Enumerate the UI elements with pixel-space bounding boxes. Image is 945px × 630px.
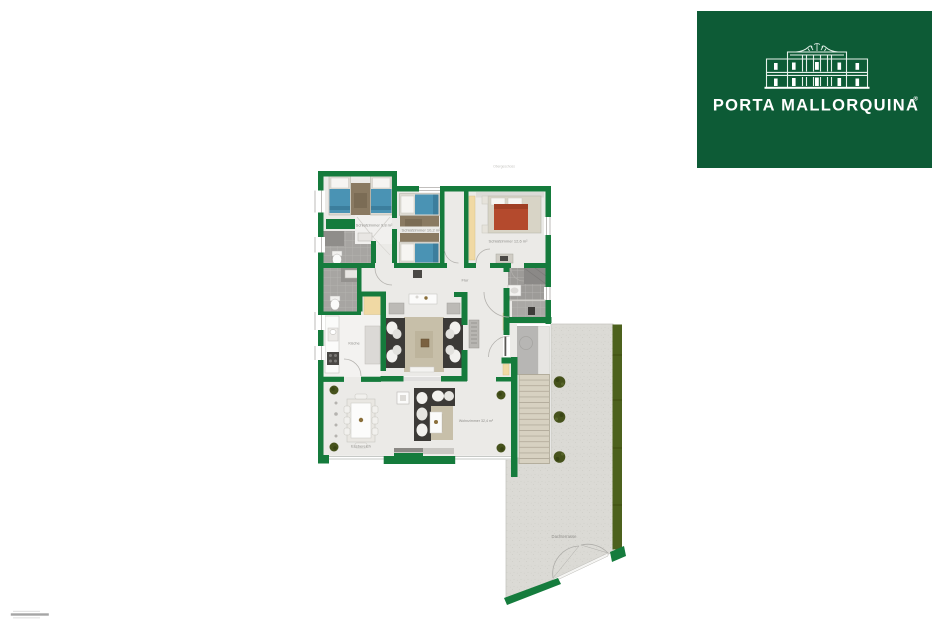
svg-text:Küche: Küche [348,341,360,346]
svg-text:Dachterrasse: Dachterrasse [552,534,578,539]
svg-text:Schlafzimmer 9,8 m²: Schlafzimmer 9,8 m² [356,223,393,228]
svg-text:Wohnzimmer 32,4 m²: Wohnzimmer 32,4 m² [459,419,494,423]
svg-text:Obergeschoss: Obergeschoss [493,165,515,169]
svg-text:®: ® [914,96,919,103]
svg-text:Flur: Flur [462,278,470,283]
svg-text:Essbereich: Essbereich [351,444,371,449]
svg-text:Schlafzimmer 12,6 m²: Schlafzimmer 12,6 m² [489,239,529,244]
svg-text:PORTA MALLORQUINA: PORTA MALLORQUINA [713,97,919,115]
svg-text:Schlafzimmer 10,2 m²: Schlafzimmer 10,2 m² [402,228,442,233]
